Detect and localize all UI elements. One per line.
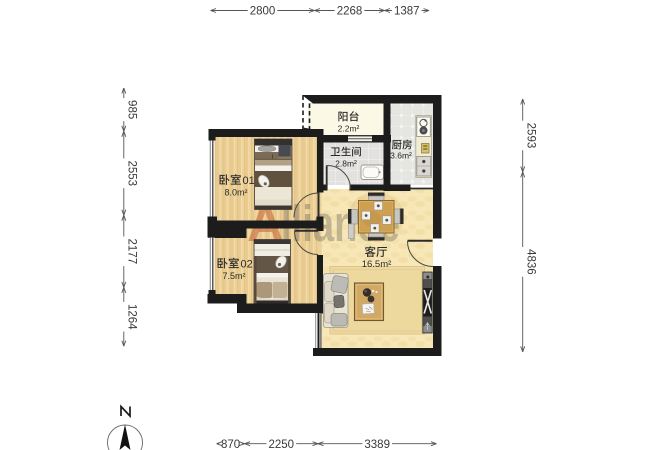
svg-text:3389: 3389 bbox=[364, 439, 390, 450]
svg-text:2268: 2268 bbox=[337, 6, 363, 18]
svg-text:2.2m²: 2.2m² bbox=[338, 124, 360, 134]
svg-text:1264: 1264 bbox=[126, 304, 138, 330]
svg-text:8.0m²: 8.0m² bbox=[224, 188, 247, 198]
svg-text:4836: 4836 bbox=[525, 249, 537, 275]
svg-text:870: 870 bbox=[221, 439, 240, 450]
svg-text:1387: 1387 bbox=[394, 6, 420, 18]
svg-text:2593: 2593 bbox=[525, 123, 537, 149]
svg-text:2177: 2177 bbox=[126, 239, 138, 265]
svg-text:16.5m²: 16.5m² bbox=[362, 259, 392, 270]
svg-text:2800: 2800 bbox=[250, 6, 276, 18]
svg-text:2553: 2553 bbox=[126, 160, 138, 186]
svg-text:2250: 2250 bbox=[269, 439, 295, 450]
svg-text:02: 02 bbox=[241, 259, 253, 271]
svg-text:3.6m²: 3.6m² bbox=[390, 151, 412, 161]
svg-text:985: 985 bbox=[126, 100, 138, 119]
svg-text:2.8m²: 2.8m² bbox=[335, 159, 357, 169]
svg-text:7.5m²: 7.5m² bbox=[222, 271, 245, 281]
svg-text:01: 01 bbox=[243, 175, 255, 187]
